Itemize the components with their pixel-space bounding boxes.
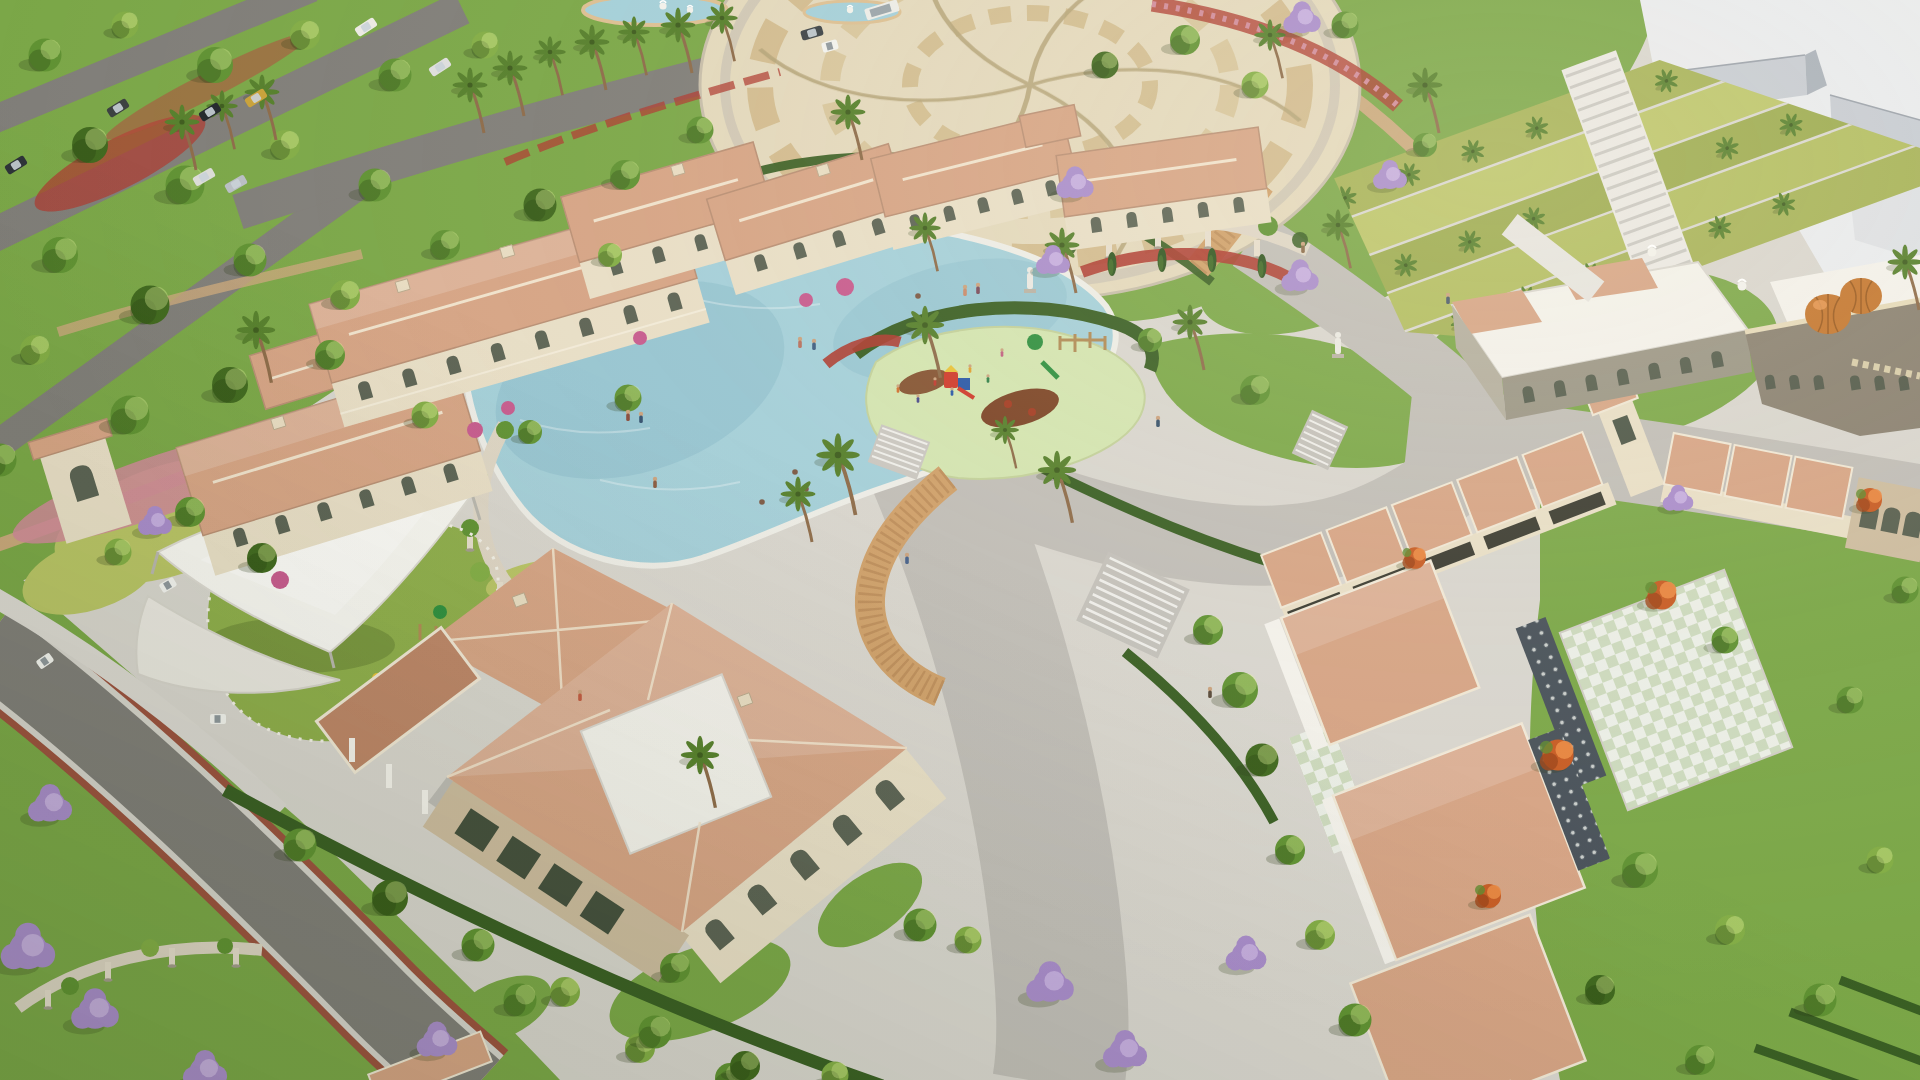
resort-aerial-rendering: Aerial 3D architectural rendering of a M… bbox=[0, 0, 1920, 1080]
shadow-overlay bbox=[0, 0, 1920, 1080]
render-canvas: Aerial 3D architectural rendering of a M… bbox=[0, 0, 1920, 1080]
